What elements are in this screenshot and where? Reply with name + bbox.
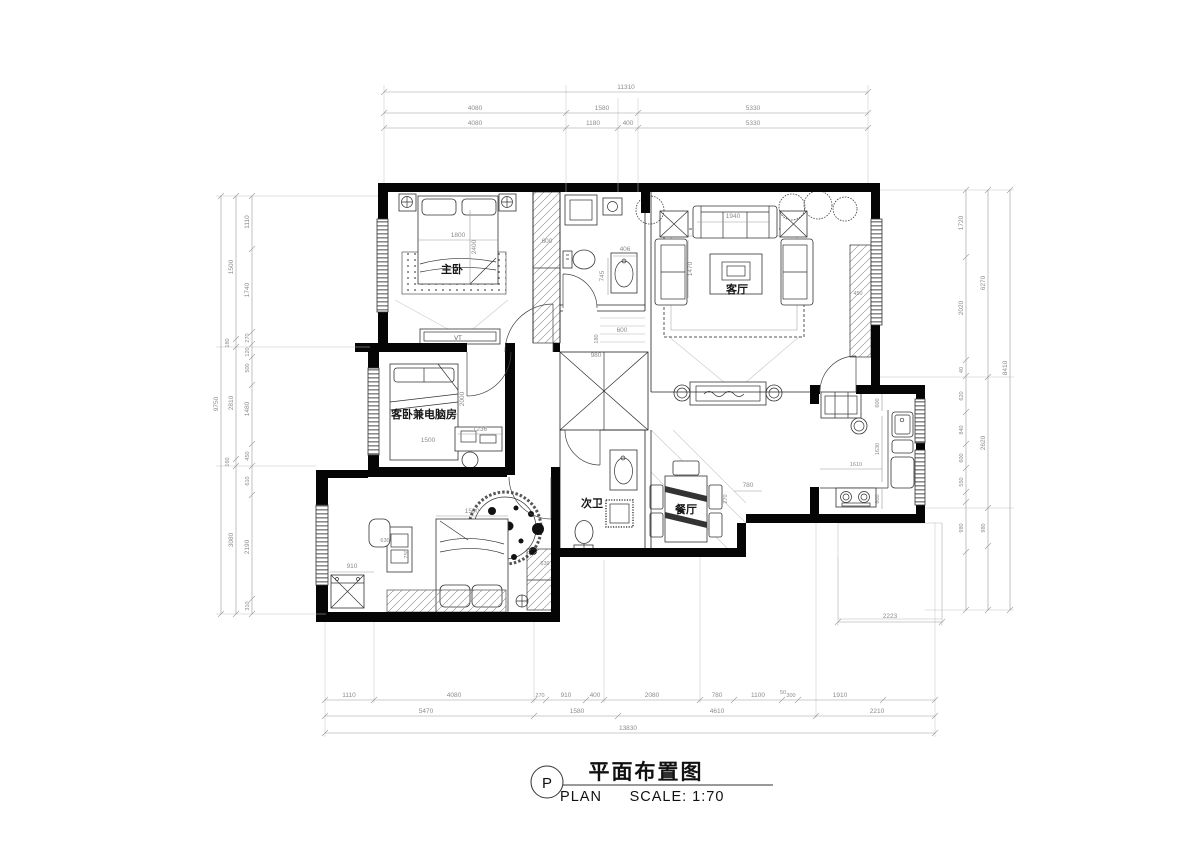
plan-title-en: PLAN [560, 789, 602, 805]
dim-left: 180 [225, 338, 231, 347]
room-label-guest: 客卧兼电脑房 [390, 407, 457, 421]
dim-left: 310 [245, 601, 251, 610]
title-block: P 平面布置图 PLAN SCALE: 1:70 [531, 760, 773, 805]
dim-int: 1630 [875, 443, 881, 455]
dim-right: 1720 [958, 215, 965, 230]
dim-int: 1940 [726, 213, 741, 220]
dim-left-overall: 9750 [213, 396, 220, 411]
dim-int: 910 [347, 563, 358, 570]
tv-label: VT [454, 336, 462, 342]
dim-int: 180 [594, 334, 600, 343]
plan-scale: SCALE: 1:70 [630, 789, 725, 805]
living-tv-cabinet [690, 382, 766, 405]
dim-bottom: 5470 [419, 708, 434, 715]
dim-bottom: 4610 [710, 708, 725, 715]
dim-int: 750 [404, 549, 410, 558]
door-guest [467, 352, 511, 396]
room-label-living: 客厅 [725, 282, 748, 296]
dim-top: 400 [623, 120, 634, 127]
dim-int: 1500 [421, 437, 436, 444]
dim-left: 120 [245, 347, 251, 356]
window-guest [368, 368, 379, 455]
pot [851, 418, 867, 434]
pillow [462, 199, 496, 215]
dim-left: 3080 [228, 532, 235, 547]
dim-bottom: 2080 [645, 692, 660, 699]
dim-top: 5330 [746, 120, 761, 127]
balcony-outline [838, 523, 942, 619]
dim-int: 600 [875, 494, 881, 503]
plant-icon [804, 191, 832, 219]
dim-int: 780 [743, 482, 754, 489]
dim-balcony: 2223 [883, 613, 898, 620]
dim-right-overall: 8410 [1002, 360, 1009, 375]
stool [674, 385, 690, 401]
dim-int: 745 [599, 270, 606, 281]
window-bedroom2 [316, 505, 328, 585]
door-bath1 [563, 274, 597, 308]
dim-top: 4080 [468, 120, 483, 127]
plan-tag: P [542, 775, 552, 792]
living-cabinet [850, 245, 871, 357]
dim-bottom: 1110 [342, 692, 356, 699]
living-room-furniture [636, 191, 871, 405]
dining-chair [650, 513, 663, 537]
dim-left: 2190 [244, 539, 251, 554]
pillow [422, 199, 456, 215]
dim-int: 630 [540, 561, 549, 567]
dim-bottom: 1100 [751, 692, 765, 699]
dim-int: 600 [542, 238, 553, 245]
dim-left: 610 [245, 476, 251, 485]
dim-bottom: 50 [780, 690, 786, 696]
dim-bottom-overall: 13830 [619, 725, 637, 732]
dim-right: 550 [959, 477, 965, 486]
washer [603, 198, 622, 215]
dining-chair [650, 485, 663, 509]
dim-right: 40 [959, 367, 965, 373]
master-wardrobe [533, 192, 560, 343]
door-bath2 [565, 430, 600, 465]
kitchen-sink-2 [892, 440, 913, 453]
dim-top: 1580 [595, 105, 610, 112]
dim-right: 980 [981, 523, 987, 532]
dim-int: 600 [875, 398, 881, 407]
dim-left: 1110 [244, 215, 251, 229]
dim-int: 2400 [471, 239, 478, 254]
low-cabinet [387, 590, 506, 612]
toilet-tank [563, 251, 572, 268]
plan-title-cn: 平面布置图 [589, 760, 704, 784]
dim-bottom: 270 [535, 693, 544, 699]
window-master [377, 219, 388, 312]
dim-int: 270 [723, 494, 729, 503]
kitchen-counter [891, 457, 914, 488]
kitchen-furniture [820, 392, 914, 507]
room-label-bath2: 次卫 [581, 496, 603, 510]
dimension-extension-lines [216, 85, 1014, 737]
dim-left: 1740 [244, 282, 251, 297]
dim-int: 406 [620, 246, 631, 253]
dim-int: 1800 [451, 232, 466, 239]
dim-right: 620 [959, 391, 965, 400]
dim-right: 2020 [958, 300, 965, 315]
plant-icon [833, 197, 857, 221]
dim-left: 2810 [228, 395, 235, 410]
hall-closet [560, 352, 648, 430]
window-kitchen-1 [915, 399, 925, 443]
window-kitchen-2 [915, 450, 925, 505]
dim-left: 1500 [228, 259, 235, 274]
dim-top: 4080 [468, 105, 483, 112]
stool [766, 385, 782, 401]
dim-bottom: 780 [712, 692, 723, 699]
dimension-labels: 11310 4080 1580 5330 4080 1180 400 5330 … [213, 84, 1009, 732]
dim-int: 1610 [850, 462, 862, 468]
bedroom2-furniture [331, 492, 558, 613]
room-label-master: 主卧 [441, 262, 463, 276]
dim-top: 5330 [746, 105, 761, 112]
room-label-dining: 餐厅 [674, 502, 697, 516]
dim-right: 6270 [980, 275, 987, 290]
dim-bottom: 4080 [447, 692, 462, 699]
master-bedroom-furniture: VT [399, 192, 560, 344]
dining-chair [673, 461, 699, 475]
dim-int: 450 [853, 291, 862, 297]
dim-bottom: 300 [786, 693, 795, 699]
dim-bottom: 2210 [870, 708, 885, 715]
dim-int: 1470 [687, 261, 694, 276]
dining-chair [709, 513, 722, 537]
dining-chair [709, 485, 722, 509]
dim-bottom: 1580 [570, 708, 585, 715]
dining-furniture [650, 461, 722, 542]
dim-top-overall: 11310 [617, 84, 635, 91]
dim-left: 1480 [244, 401, 251, 416]
dim-left: 500 [245, 363, 251, 372]
dim-left: 450 [245, 451, 251, 460]
dim-right: 600 [959, 453, 965, 462]
floor-plan-drawing: VT [0, 0, 1200, 848]
floor-plan-page: VT [0, 0, 1200, 848]
dim-right: 840 [959, 425, 965, 434]
dim-left: 160 [225, 457, 231, 466]
dim-top: 1180 [586, 120, 600, 127]
dim-bottom: 1910 [833, 692, 848, 699]
toilet2 [575, 521, 593, 544]
window-living [871, 219, 882, 325]
door-kitchen [820, 356, 856, 392]
dim-left: 270 [245, 333, 251, 342]
dim-int: 980 [591, 352, 602, 359]
dim-int: 1236 [473, 426, 488, 433]
dim-right: 2620 [980, 435, 987, 450]
desk-chair [462, 452, 478, 468]
dim-bottom: 910 [561, 692, 572, 699]
dim-bottom: 400 [590, 692, 601, 699]
dim-int: 630 [380, 538, 389, 544]
toilet [573, 250, 595, 269]
dim-right: 980 [959, 523, 965, 532]
dim-int: 600 [617, 327, 628, 334]
dim-int: 1500 [465, 508, 480, 515]
dim-int: 2000 [459, 391, 466, 406]
